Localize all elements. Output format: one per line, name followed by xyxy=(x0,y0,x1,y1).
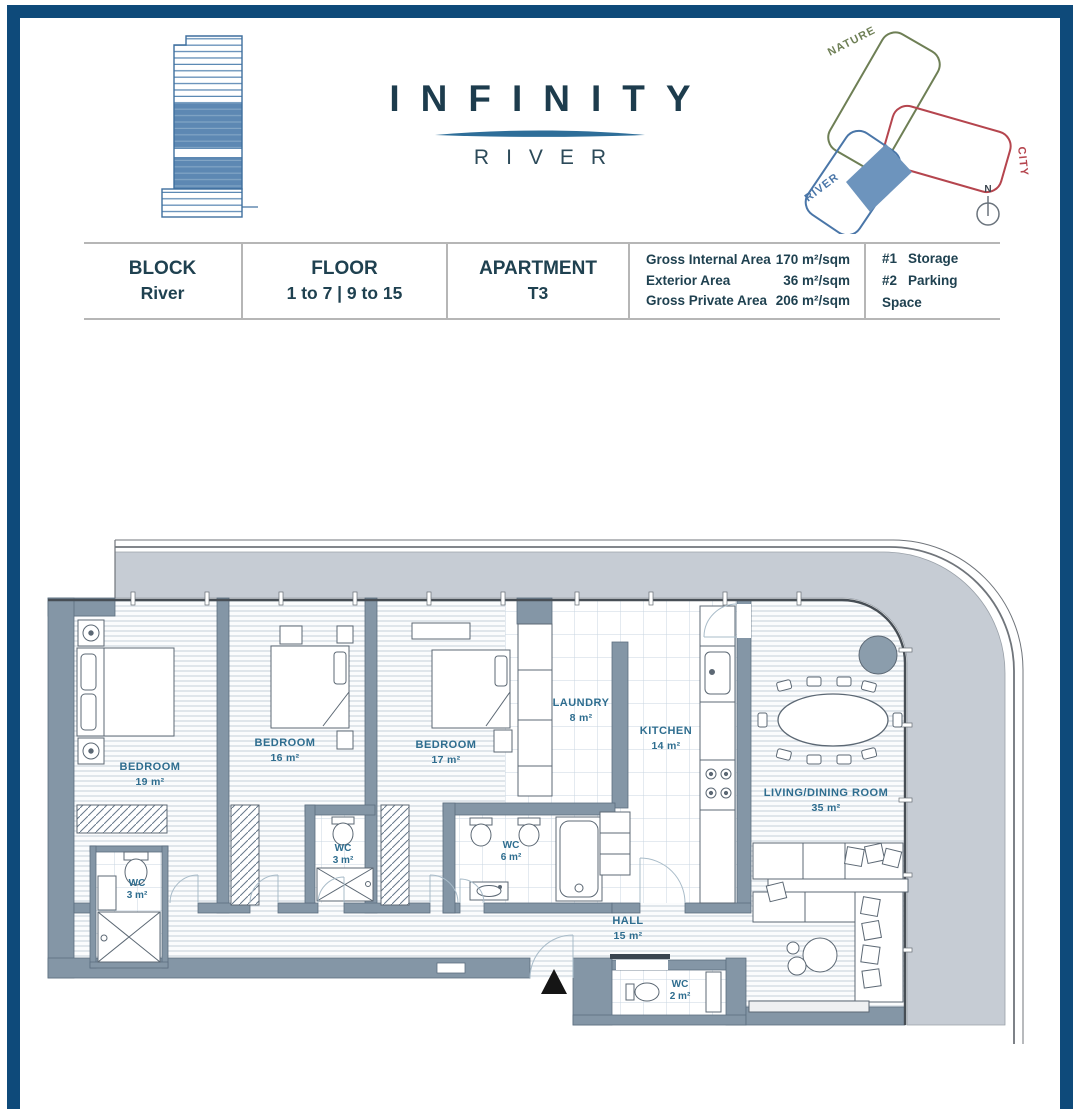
sink-icon xyxy=(706,972,721,1012)
river-label: RIVER xyxy=(803,171,842,204)
apartment-location-highlight xyxy=(846,144,912,212)
area-value: 170 m²/sqm xyxy=(776,250,850,271)
nightstand-icon xyxy=(494,730,512,752)
area-row: Gross Internal Area 170 m²/sqm xyxy=(646,250,850,271)
floor-value: 1 to 7 | 9 to 15 xyxy=(287,282,403,306)
sink-icon xyxy=(98,876,116,910)
extras-column: #1Storage #2Parking Space xyxy=(866,244,1000,318)
building-icon xyxy=(148,33,260,233)
bidet-icon xyxy=(518,818,540,846)
area-row: Gross Private Area 206 m²/sqm xyxy=(646,291,850,312)
compass-n-label: N xyxy=(984,184,991,195)
svg-text:17 m²: 17 m² xyxy=(432,754,461,766)
nightstand-icon xyxy=(337,626,353,643)
spec-table: BLOCK River FLOOR 1 to 7 | 9 to 15 APART… xyxy=(84,242,1000,320)
svg-text:15 m²: 15 m² xyxy=(614,930,643,942)
room-label-laundry: LAUNDRY xyxy=(553,697,610,709)
brochure-page: INFINITY RIVER NATURE CITY RIVER N BLOCK… xyxy=(0,0,1080,1109)
area-label: Exterior Area xyxy=(646,271,730,292)
logo-subtitle: RIVER xyxy=(330,146,750,170)
room-label-wc-a: WC xyxy=(129,878,146,889)
apartment-value: T3 xyxy=(528,282,548,306)
room-label-bedroom-3: BEDROOM xyxy=(416,739,477,751)
room-label-wc-b: WC xyxy=(335,843,352,854)
bed-icon xyxy=(77,648,174,736)
area-row: Exterior Area 36 m²/sqm xyxy=(646,271,850,292)
extra-label: Storage xyxy=(908,251,958,266)
svg-text:35 m²: 35 m² xyxy=(812,802,841,814)
area-value: 206 m²/sqm xyxy=(776,291,850,312)
sofa-table xyxy=(768,879,908,892)
area-value: 36 m²/sqm xyxy=(783,271,850,292)
kitchen-counter xyxy=(700,606,735,903)
shower-icon xyxy=(98,912,160,962)
svg-text:2 m²: 2 m² xyxy=(670,991,691,1002)
bed-icon xyxy=(271,646,349,728)
area-label: Gross Internal Area xyxy=(646,250,771,271)
room-label-wc-c: WC xyxy=(503,840,520,851)
wardrobe-icon xyxy=(77,805,167,833)
nightstand-icon xyxy=(78,620,104,646)
bathtub-icon xyxy=(556,817,602,901)
kitchen-top-door-opening xyxy=(737,604,751,638)
block-column: BLOCK River xyxy=(84,244,243,318)
room-label-kitchen: KITCHEN xyxy=(640,725,692,737)
stove-icon xyxy=(700,760,735,810)
wc2-sliding-door xyxy=(610,954,670,959)
city-label: CITY xyxy=(1015,146,1030,177)
area-label: Gross Private Area xyxy=(646,291,767,312)
column xyxy=(859,636,897,674)
svg-text:14 m²: 14 m² xyxy=(652,740,681,752)
svg-text:8 m²: 8 m² xyxy=(570,712,593,724)
logo: INFINITY RIVER xyxy=(330,78,750,170)
hall-cabinets xyxy=(600,812,630,875)
nightstand-icon xyxy=(337,731,353,749)
room-label-bedroom-2: BEDROOM xyxy=(255,737,316,749)
laundry-cabinets xyxy=(518,624,552,796)
room-label-living: LIVING/DINING ROOM xyxy=(764,787,889,799)
svg-text:6 m²: 6 m² xyxy=(501,852,522,863)
wardrobe-icon xyxy=(381,805,409,905)
bed-icon xyxy=(432,650,510,728)
extra-row: #2Parking Space xyxy=(882,270,1000,315)
site-location-diagram: NATURE CITY RIVER N xyxy=(800,22,1060,234)
block-value: River xyxy=(141,282,185,306)
svg-text:16 m²: 16 m² xyxy=(271,752,300,764)
dresser-icon xyxy=(280,626,302,644)
nature-label: NATURE xyxy=(826,24,878,58)
logo-title: INFINITY xyxy=(330,78,750,120)
toilet-icon xyxy=(626,983,659,1001)
extra-row: #1Storage xyxy=(882,248,958,270)
svg-text:3 m²: 3 m² xyxy=(333,855,354,866)
tv-console xyxy=(749,1001,869,1012)
extra-num: #1 xyxy=(882,248,908,270)
floor-plan: BEDROOM 19 m² BEDROOM 16 m² BEDROOM 17 m… xyxy=(0,520,1080,1109)
apartment-column: APARTMENT T3 xyxy=(448,244,630,318)
svg-text:3 m²: 3 m² xyxy=(127,890,148,901)
logo-swoosh-icon xyxy=(433,130,647,140)
floor-label: FLOOR xyxy=(311,256,378,282)
toilet-icon xyxy=(470,818,492,846)
block-label: BLOCK xyxy=(129,256,197,282)
room-label-wc-d: WC xyxy=(672,979,689,990)
apartment-label: APARTMENT xyxy=(479,256,597,282)
areas-column: Gross Internal Area 170 m²/sqm Exterior … xyxy=(630,244,866,318)
nightstand-icon xyxy=(78,738,104,764)
wardrobe-icon xyxy=(231,805,259,905)
room-label-bedroom-1: BEDROOM xyxy=(120,761,181,773)
wc2-door-opening xyxy=(616,960,668,970)
svg-text:19 m²: 19 m² xyxy=(136,776,165,788)
wall-niche xyxy=(437,963,465,973)
extra-num: #2 xyxy=(882,270,908,292)
toilet-icon xyxy=(332,817,354,845)
dresser-icon xyxy=(412,623,470,639)
floor-column: FLOOR 1 to 7 | 9 to 15 xyxy=(243,244,448,318)
room-label-hall: HALL xyxy=(612,915,643,927)
